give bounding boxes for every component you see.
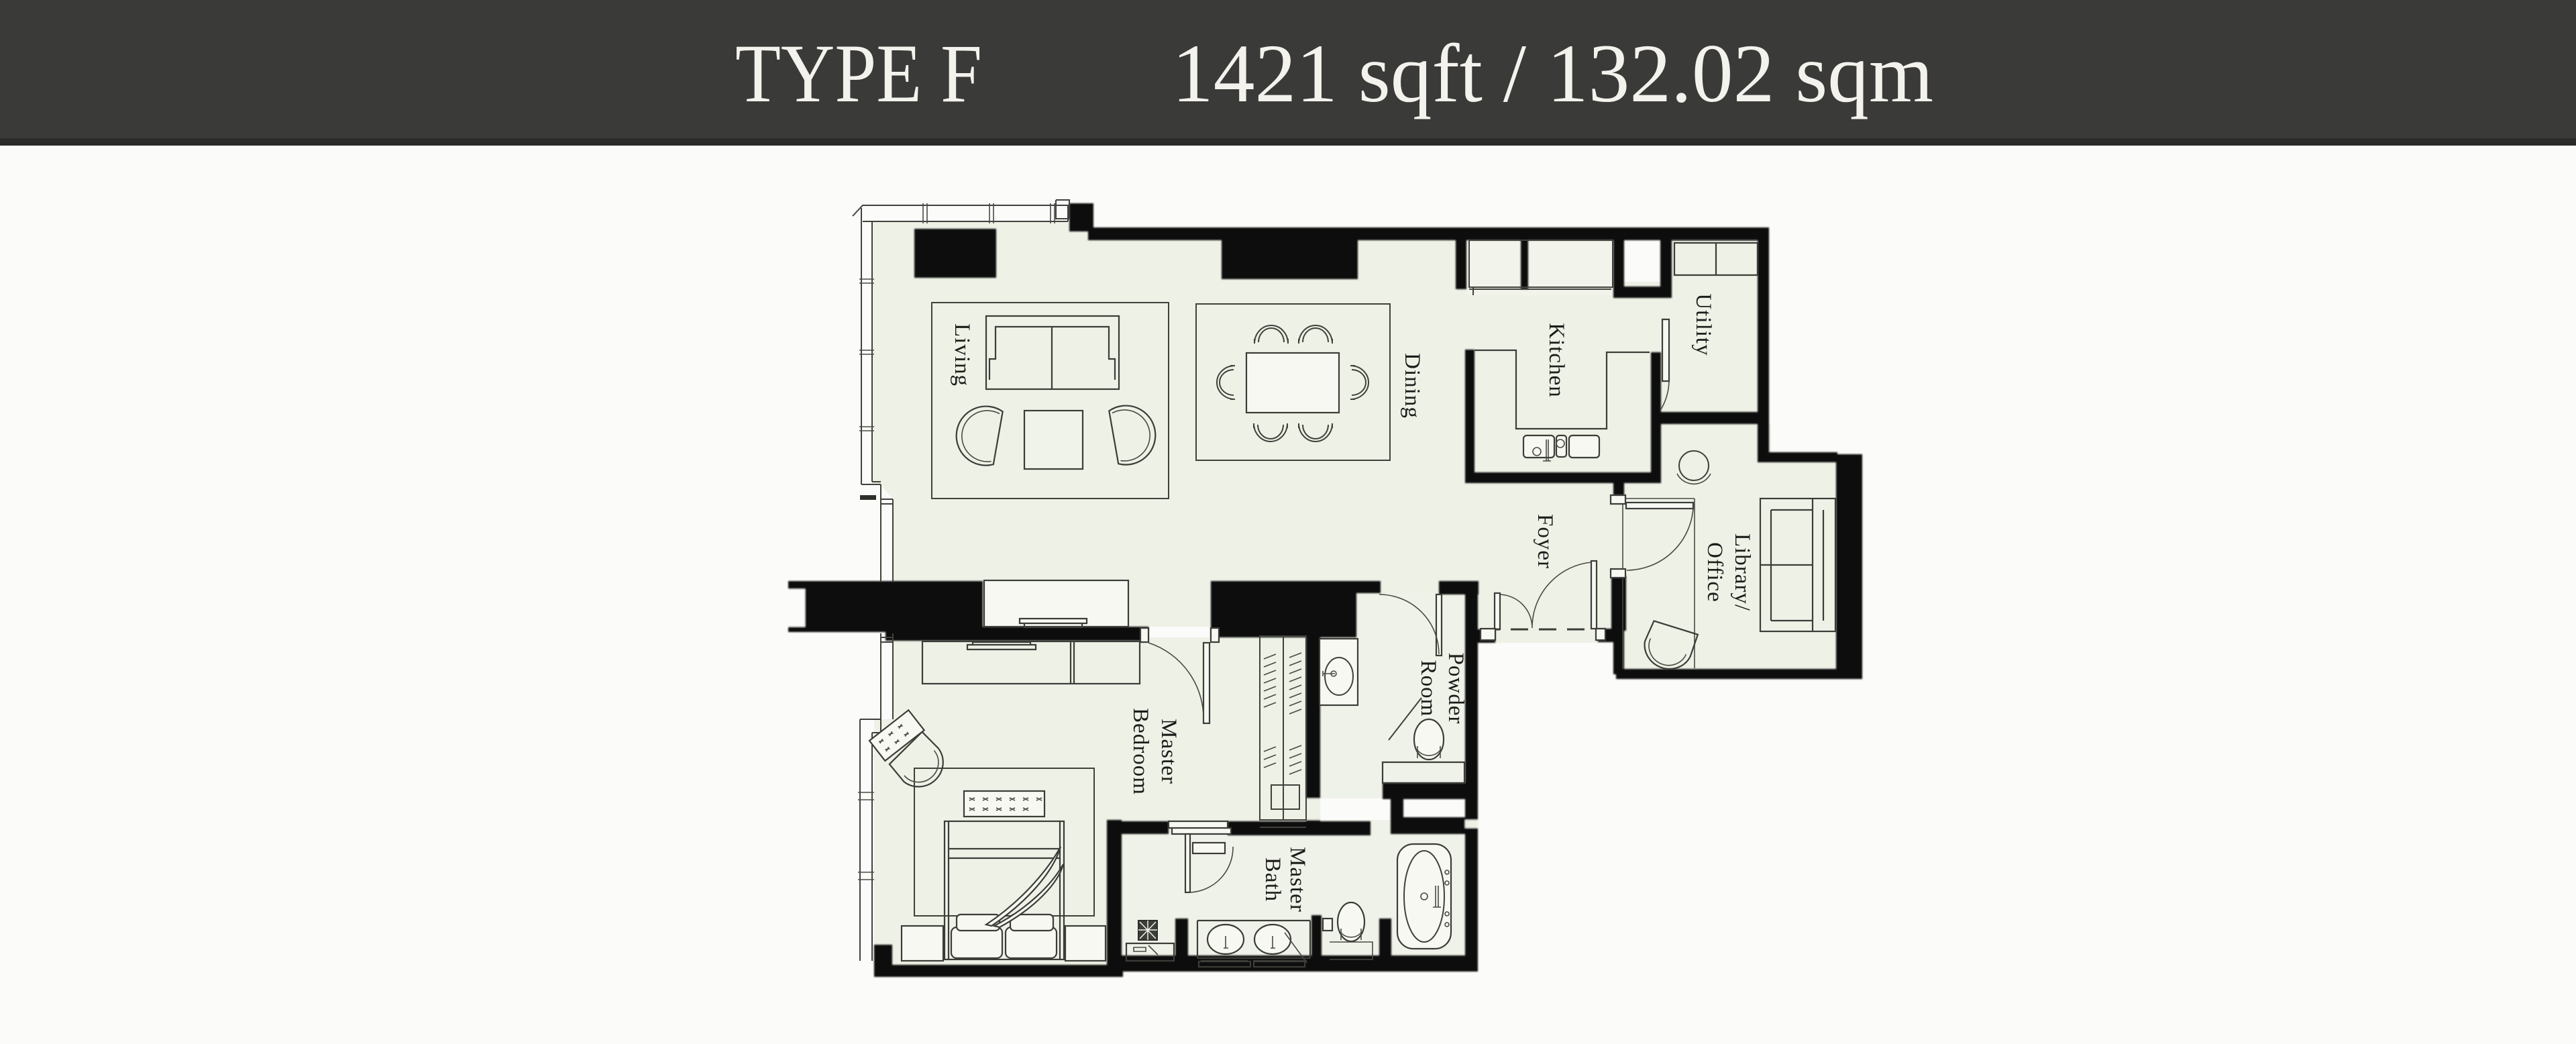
svg-text:Master: Master xyxy=(1285,847,1309,912)
svg-text:Living: Living xyxy=(950,323,974,386)
svg-text:Master: Master xyxy=(1157,719,1181,784)
svg-text:Room: Room xyxy=(1416,660,1440,717)
svg-text:Dining: Dining xyxy=(1400,353,1424,419)
svg-text:Bath: Bath xyxy=(1260,857,1285,902)
svg-text:TYPE F: TYPE F xyxy=(735,28,982,119)
svg-text:Bedroom: Bedroom xyxy=(1128,708,1152,795)
svg-text:Kitchen: Kitchen xyxy=(1544,323,1568,397)
svg-text:1421 sqft / 132.02 sqm: 1421 sqft / 132.02 sqm xyxy=(1172,28,1933,119)
svg-text:Powder: Powder xyxy=(1444,653,1468,725)
svg-text:Library/: Library/ xyxy=(1730,533,1754,611)
svg-text:Office: Office xyxy=(1703,542,1727,603)
svg-text:Foyer: Foyer xyxy=(1533,514,1557,569)
svg-text:Utility: Utility xyxy=(1691,293,1715,356)
